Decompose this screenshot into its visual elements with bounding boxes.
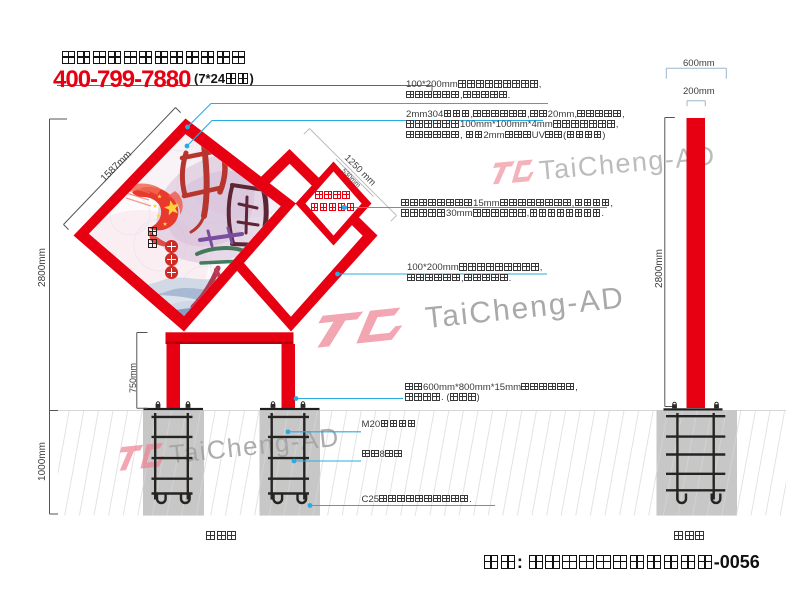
svg-text:TaiCheng-AD: TaiCheng-AD bbox=[424, 281, 627, 335]
